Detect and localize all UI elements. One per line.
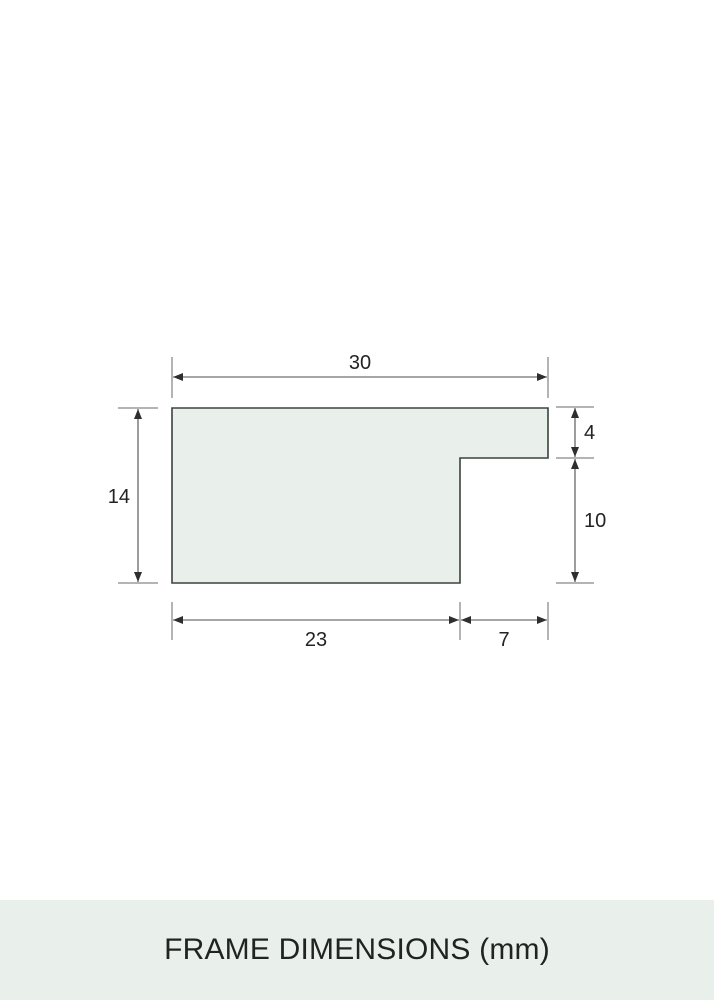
dimension-left-height: 14 xyxy=(108,408,158,583)
dimension-right-lower: 10 xyxy=(556,459,606,583)
dimension-label-right-lower: 10 xyxy=(584,510,606,532)
dimension-label-right-upper: 4 xyxy=(584,422,595,444)
page: 30 14 4 10 23 xyxy=(0,0,714,1000)
dimension-right-upper: 4 xyxy=(556,407,595,458)
dimension-label-left-height: 14 xyxy=(108,486,130,508)
footer-title: FRAME DIMENSIONS (mm) xyxy=(164,933,550,967)
dimension-top-width: 30 xyxy=(172,352,548,398)
dimension-bottom-right: 7 xyxy=(461,602,548,651)
dimension-label-bottom-right: 7 xyxy=(498,629,509,651)
footer-bar: FRAME DIMENSIONS (mm) xyxy=(0,900,714,1000)
frame-profile-shape xyxy=(172,408,548,583)
dimension-bottom-left: 23 xyxy=(172,602,460,651)
frame-profile-diagram: 30 14 4 10 23 xyxy=(0,0,714,900)
dimension-label-bottom-left: 23 xyxy=(305,629,327,651)
dimension-label-top-width: 30 xyxy=(349,352,371,374)
